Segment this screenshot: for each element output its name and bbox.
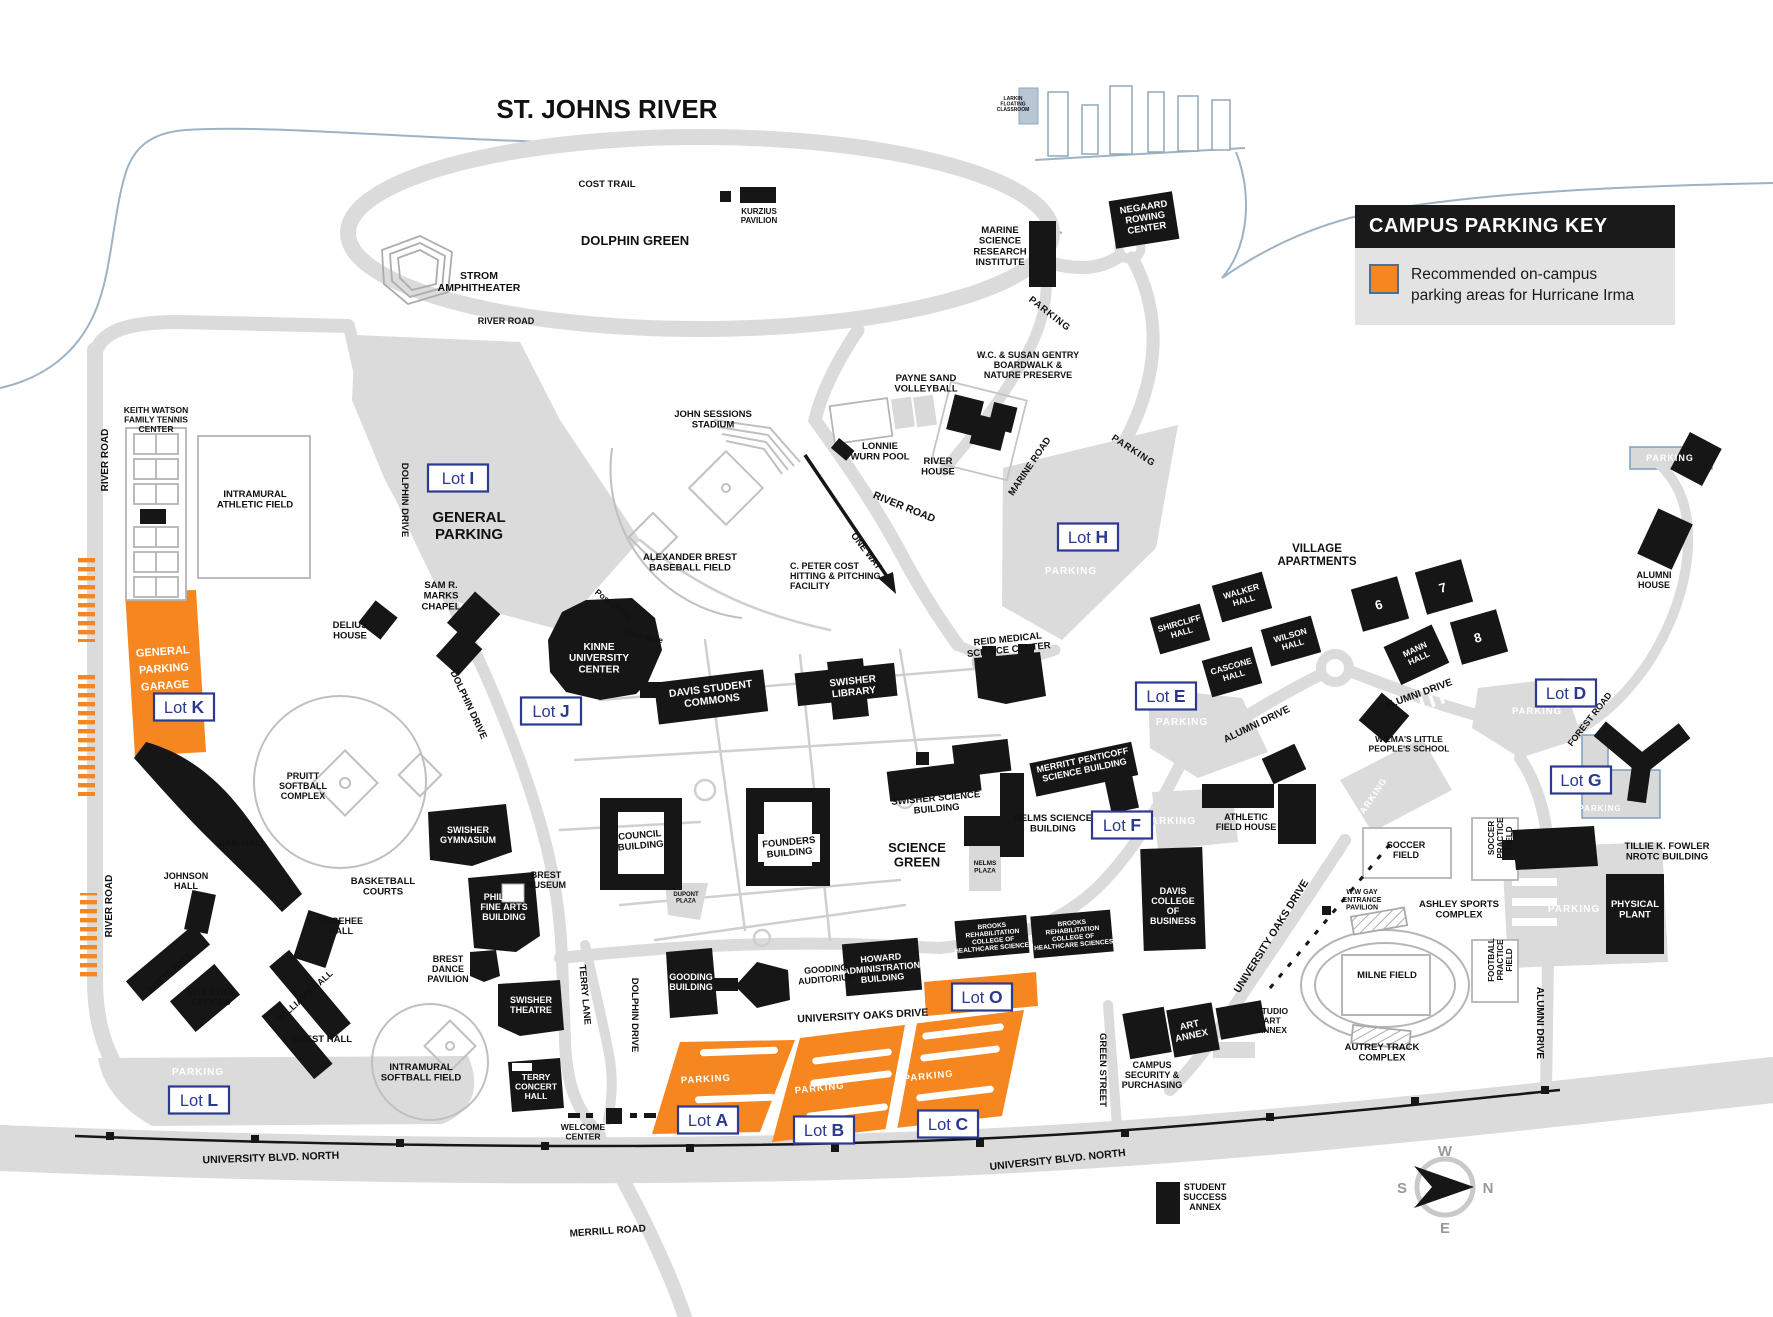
lot-badge-G: Lot G xyxy=(1551,767,1611,794)
lot-badge-text-G: Lot G xyxy=(1560,770,1601,790)
lot-badge-F: Lot F xyxy=(1092,812,1152,839)
gate-marker xyxy=(1322,906,1331,915)
dupont-plaza-label: DUPONTPLAZA xyxy=(673,892,699,905)
village-apartments-label: VILLAGEAPARTMENTS xyxy=(1277,543,1356,568)
brest-hall-label: BREST HALL xyxy=(292,1034,352,1045)
tennis-center-building xyxy=(140,509,166,524)
gooding-building-label: GOODINGBUILDING xyxy=(669,972,713,992)
intramural-athletic-label: INTRAMURALATHLETIC FIELD xyxy=(217,489,293,511)
ashley-sports-complex-label: ASHLEY SPORTSCOMPLEX xyxy=(1419,899,1499,921)
dolphin-green-label: DOLPHIN GREEN xyxy=(581,233,689,248)
athletic-field-house-label: ATHLETICFIELD HOUSE xyxy=(1216,812,1277,832)
one-way-arrowhead xyxy=(878,572,896,594)
wc-susan-gentry-label: W.C. & SUSAN GENTRYBOARDWALK &NATURE PRE… xyxy=(977,350,1079,380)
studio-art-annex-pad xyxy=(1213,1042,1255,1058)
river-road-top xyxy=(95,322,348,355)
river-road-left1-label: RIVER ROAD xyxy=(100,429,111,492)
lot-badge-text-L: Lot L xyxy=(180,1090,219,1110)
tillie-fowler-nrotc-label: TILLIE K. FOWLERNROTC BUILDING xyxy=(1625,841,1710,863)
lot-badge-O: Lot O xyxy=(952,984,1012,1011)
street-parking-hatch-2 xyxy=(78,674,95,796)
street-parking-hatch-1 xyxy=(78,558,95,642)
sam-marks-chapel-label: SAM R.MARKSCHAPEL xyxy=(421,580,460,612)
general-parking-label: GENERALPARKING xyxy=(432,509,505,543)
payne-court-1 xyxy=(891,397,915,429)
recommended-parking-swatch xyxy=(1369,264,1399,294)
johnson-hall-building xyxy=(184,890,216,934)
river-house-label: RIVERHOUSE xyxy=(921,456,955,478)
lot-badge-text-A: Lot A xyxy=(688,1110,729,1130)
street-parking-hatch-3 xyxy=(80,893,97,978)
legend-line1: Recommended on-campus xyxy=(1411,266,1597,283)
brest-dance-pavilion-label: BRESTDANCEPAVILION xyxy=(427,954,468,984)
legend-line2: parking areas for Hurricane Irma xyxy=(1411,287,1634,304)
nelms-science-label: NELMS SCIENCEBUILDING xyxy=(1014,813,1092,835)
cost-trail-loop xyxy=(348,137,1052,329)
parking-forest-top-label: PARKING xyxy=(1646,453,1694,463)
oak-hall-label: OAK HALL xyxy=(217,838,266,849)
payne-sand-volleyball-label: PAYNE SANDVOLLEYBALL xyxy=(894,373,958,395)
map-canvas: ST. JOHNS RIVERCOST TRAILDOLPHIN GREENKU… xyxy=(0,0,1773,1317)
lot-badge-text-B: Lot B xyxy=(804,1120,844,1140)
parking-lot-d-label: PARKING xyxy=(1512,706,1562,717)
autrey-track-label: AUTREY TRACKCOMPLEX xyxy=(1345,1042,1420,1064)
marine-science-building xyxy=(1029,221,1056,287)
c-peter-cost-label: C. PETER COSTHITTING & PITCHINGFACILITY xyxy=(790,561,881,591)
parking-lot-l-label: PARKING xyxy=(172,1067,224,1078)
student-success-annex-label: STUDENTSUCCESSANNEX xyxy=(1183,1182,1227,1212)
lot-badge-text-D: Lot D xyxy=(1546,683,1586,703)
terry-lane-road xyxy=(585,945,612,1120)
legend-body: Recommended on-campus parking areas for … xyxy=(1355,248,1675,325)
parking-lot-e-label: PARKING xyxy=(1156,717,1208,728)
campus-parking-key: CAMPUS PARKING KEY Recommended on-campus… xyxy=(1355,205,1675,325)
science-green-label: SCIENCEGREEN xyxy=(888,840,946,870)
nelms-plaza-label: NELMSPLAZA xyxy=(974,860,997,874)
science-green-kiosk xyxy=(916,752,929,765)
brest-museum-label: BRESTMUSEUM xyxy=(526,870,566,890)
river-house-building xyxy=(944,392,1017,452)
council-building-label: COUNCILBUILDING xyxy=(616,828,664,854)
campus-security-label: CAMPUSSECURITY &PURCHASING xyxy=(1122,1060,1183,1090)
lot-badge-text-F: Lot F xyxy=(1103,815,1142,835)
tillie-fowler-building xyxy=(1502,826,1598,870)
lot-badge-D: Lot D xyxy=(1536,680,1596,707)
lot-badge-text-C: Lot C xyxy=(928,1114,969,1134)
alumni-drive-vertical-label: ALUMNI DRIVE xyxy=(1534,987,1545,1060)
payne-court-2 xyxy=(913,395,937,427)
compass-rose xyxy=(1414,1159,1474,1215)
green-street-label: GREEN STREET xyxy=(1097,1033,1108,1107)
alexander-brest-field xyxy=(611,420,800,618)
general-parking-garage-label: GENERALPARKINGGARAGE xyxy=(136,644,193,694)
lot-badge-I: Lot I xyxy=(428,465,488,492)
milne-field-label: MILNE FIELD xyxy=(1357,970,1417,981)
gooding-auditorium-building xyxy=(712,962,790,1008)
lot-badge-text-J: Lot J xyxy=(532,701,569,721)
lot-badge-J: Lot J xyxy=(521,698,581,725)
student-success-annex-building xyxy=(1156,1182,1180,1224)
lot-badge-text-K: Lot K xyxy=(164,697,205,717)
oak-hall-building xyxy=(134,742,302,912)
athletics-offices-label: ATHLETICSOFFICES xyxy=(186,987,236,1007)
lot-badge-B: Lot B xyxy=(794,1117,854,1144)
lot-badge-text-E: Lot E xyxy=(1146,686,1185,706)
merrill-road-label: MERRILL ROAD xyxy=(569,1223,646,1239)
lot-badge-text-H: Lot H xyxy=(1068,527,1108,547)
river-road-left2-label: RIVER ROAD xyxy=(104,875,115,938)
lonnie-wurn-pool-deck xyxy=(830,398,893,444)
lot-badge-E: Lot E xyxy=(1136,683,1196,710)
swisher-theatre-label: SWISHERTHEATRE xyxy=(510,995,553,1015)
docks xyxy=(1048,86,1230,156)
university-oaks-diag-label: UNIVERSITY OAKS DRIVE xyxy=(1232,878,1312,996)
lot-badge-text-I: Lot I xyxy=(442,468,474,488)
compass-s: S xyxy=(1397,1180,1407,1197)
compass-n: N xyxy=(1483,1180,1494,1197)
john-sessions-stadium-label: JOHN SESSIONSSTADIUM xyxy=(674,409,752,431)
alumni-house-label: ALUMNIHOUSE xyxy=(1637,570,1672,590)
parking-lot-h-label: PARKING xyxy=(1045,566,1097,577)
athletic-field-house-1 xyxy=(1202,784,1274,808)
parking-physical-plant-label: PARKING xyxy=(1548,904,1600,915)
lonnie-wurn-pool-label: LONNIEWURN POOL xyxy=(850,441,909,463)
delius-house-label: DELIUSHOUSE xyxy=(333,620,368,642)
kurzius-pavilion-label: KURZIUSPAVILION xyxy=(741,207,778,225)
loop-extension-east xyxy=(1048,254,1122,268)
johnson-hall-label: JOHNSONHALL xyxy=(164,871,209,891)
lot-badge-A: Lot A xyxy=(678,1107,738,1134)
university-oaks-h-label: UNIVERSITY OAKS DRIVE xyxy=(797,1007,929,1026)
lot-badge-K: Lot K xyxy=(154,694,214,721)
lot-badge-L: Lot L xyxy=(169,1087,229,1114)
alexander-brest-baseball-label: ALEXANDER BRESTBASEBALL FIELD xyxy=(643,552,737,574)
basketball-courts-label: BASKETBALLCOURTS xyxy=(351,876,416,898)
athletic-field-house-2 xyxy=(1278,784,1316,844)
st-johns-river-label: ST. JOHNS RIVER xyxy=(496,94,717,124)
lot-badge-H: Lot H xyxy=(1058,524,1118,551)
wilmas-school-label: WILMA'S LITTLEPEOPLE'S SCHOOL xyxy=(1369,734,1450,754)
founders-building-label: FOUNDERSBUILDING xyxy=(762,835,817,861)
milne-track xyxy=(1301,930,1469,1040)
dolphin-drive-bottom-label: DOLPHIN DRIVE xyxy=(629,978,640,1052)
compass-w: W xyxy=(1438,1143,1453,1160)
river-road-top-label: RIVER ROAD xyxy=(478,316,535,326)
compass-arrow xyxy=(1414,1166,1474,1208)
welcome-center-label: WELCOMECENTER xyxy=(561,1122,606,1142)
lot-badge-text-O: Lot O xyxy=(961,987,1002,1007)
legend-title: CAMPUS PARKING KEY xyxy=(1355,205,1675,248)
alumni-drive-building xyxy=(1262,744,1306,785)
green-street-road xyxy=(1108,1005,1118,1140)
swisher-gymnasium-label: SWISHERGYMNASIUM xyxy=(440,825,496,845)
compass-e: E xyxy=(1440,1220,1450,1237)
phillips-fine-arts-label: PHILLIPSFINE ARTSBUILDING xyxy=(480,892,527,922)
parking-lot-g-label: PARKING xyxy=(1578,804,1621,813)
ww-gay-entrance-label: W.W GAYENTRANCEPAVILION xyxy=(1343,889,1382,912)
alumni-roundabout xyxy=(1321,654,1349,682)
campus-map: ST. JOHNS RIVERCOST TRAILDOLPHIN GREENKU… xyxy=(0,0,1773,1317)
cost-trail-label: COST TRAIL xyxy=(579,179,636,190)
dolphin-drive-top-label: DOLPHIN DRIVE xyxy=(399,463,410,537)
legend-description: Recommended on-campus parking areas for … xyxy=(1411,264,1634,307)
intramural-softball-label: INTRAMURALSOFTBALL FIELD xyxy=(381,1062,462,1084)
lot-badge-C: Lot C xyxy=(918,1111,978,1138)
brest-dance-pavilion-building xyxy=(470,950,500,982)
